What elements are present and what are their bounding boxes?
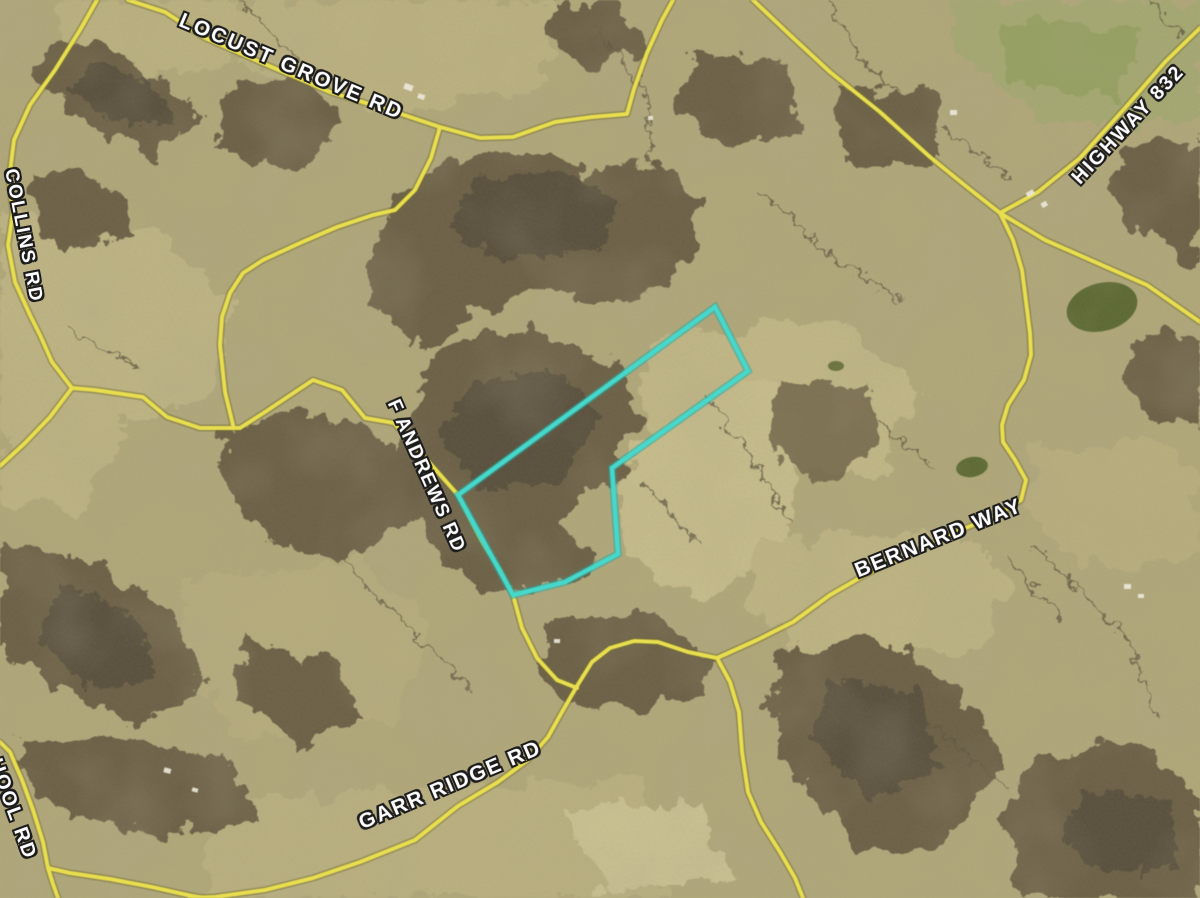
terrain-grain-texture xyxy=(0,0,1200,898)
map-viewport: LOCUST GROVE RD COLLINS RD HIGHWAY 832 F… xyxy=(0,0,1200,898)
aerial-imagery xyxy=(0,0,1200,898)
